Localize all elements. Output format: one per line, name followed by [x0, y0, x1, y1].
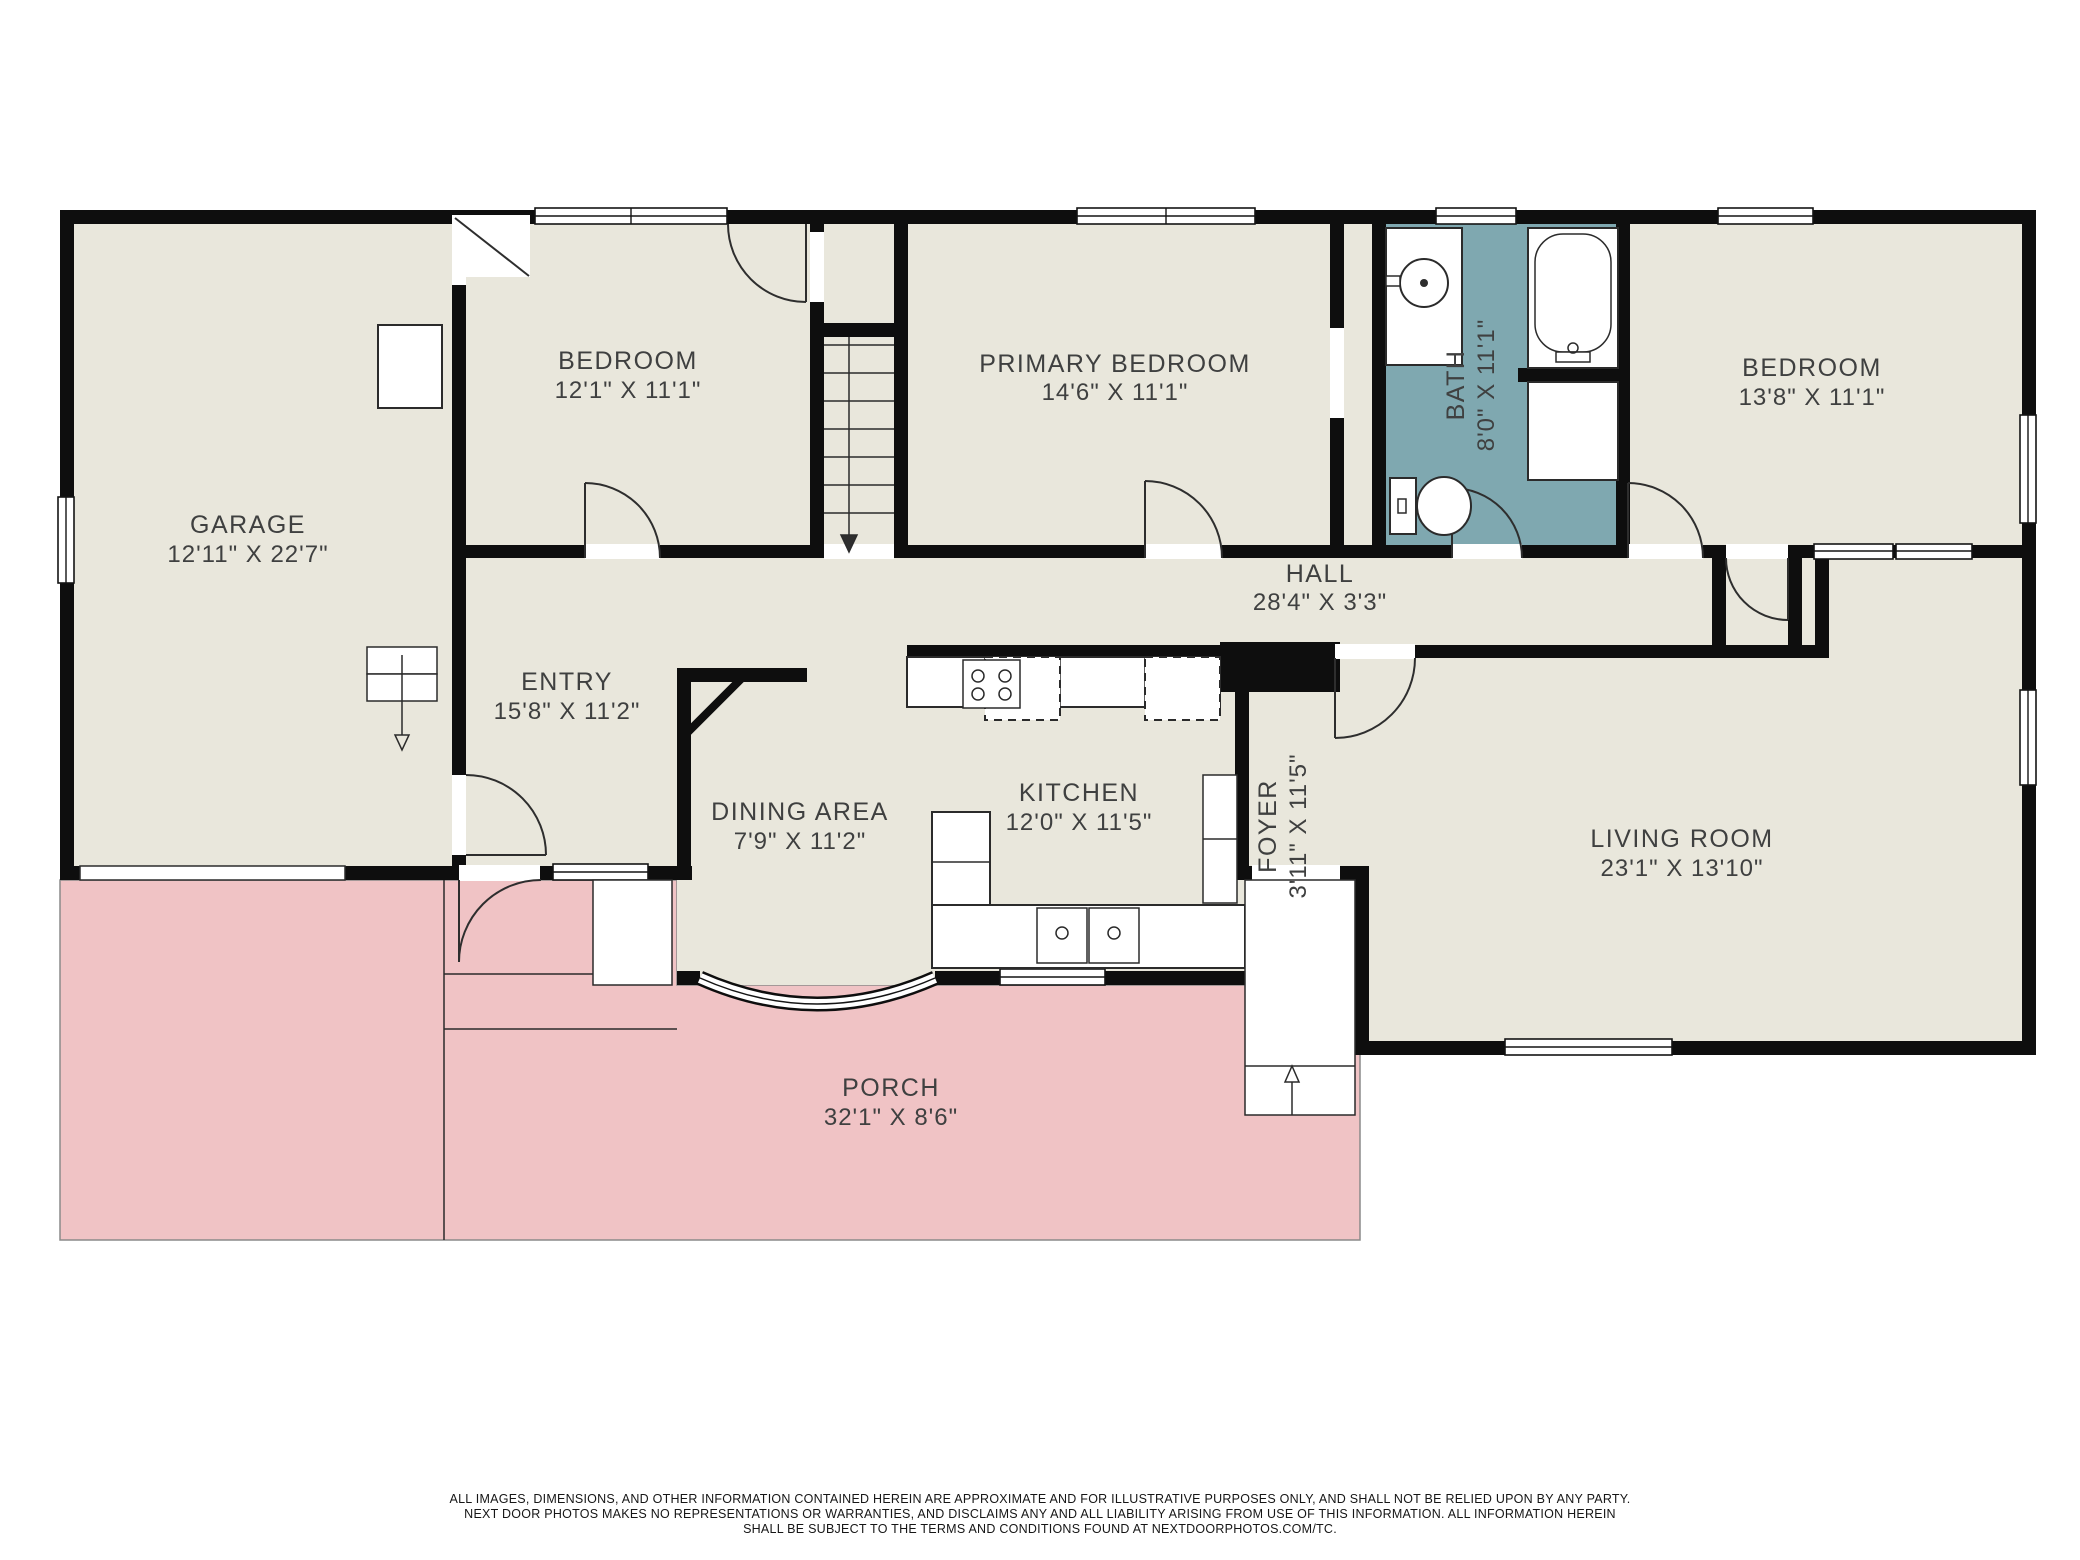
room-dims-bath: 8'0" X 11'1" [1473, 319, 1500, 452]
room-dims-entry: 15'8" X 11'2" [494, 698, 641, 725]
room-label-porch: PORCH [842, 1074, 940, 1102]
floor-plan-svg: GARAGE 12'11" X 22'7" BEDROOM 12'1" X 11… [0, 0, 2080, 1560]
toilet-bowl [1417, 477, 1471, 535]
room-label-kitchen: KITCHEN [1019, 779, 1139, 807]
room-label-bedroom-right: BEDROOM [1742, 354, 1882, 382]
room-label-bath: BATH [1442, 350, 1470, 421]
kitchen-sink [1037, 908, 1087, 963]
room-dims-garage: 12'11" X 22'7" [167, 541, 328, 568]
room-label-garage: GARAGE [190, 511, 306, 539]
bathtub-alcove [1528, 228, 1618, 368]
vanity [1386, 228, 1462, 365]
disclaimer-line-1: ALL IMAGES, DIMENSIONS, AND OTHER INFORM… [450, 1492, 1631, 1506]
room-dims-primary-bedroom: 14'6" X 11'1" [1042, 379, 1189, 406]
room-label-dining-area: DINING AREA [711, 798, 889, 826]
room-label-foyer: FOYER [1254, 779, 1282, 873]
room-dims-kitchen: 12'0" X 11'5" [1006, 809, 1153, 836]
room-label-hall: HALL [1286, 560, 1355, 588]
room-label-entry: ENTRY [521, 668, 613, 696]
disclaimer-line-2: NEXT DOOR PHOTOS MAKES NO REPRESENTATION… [464, 1507, 1616, 1521]
room-label-primary-bedroom: PRIMARY BEDROOM [979, 350, 1251, 378]
room-dims-foyer: 3'11" X 11'5" [1285, 753, 1312, 898]
linen-closet [1528, 382, 1618, 480]
entry-landing [593, 880, 672, 985]
disclaimer: ALL IMAGES, DIMENSIONS, AND OTHER INFORM… [450, 1492, 1631, 1536]
room-label-living-room: LIVING ROOM [1590, 825, 1773, 853]
room-dims-dining-area: 7'9" X 11'2" [734, 828, 867, 855]
utility-closet [378, 325, 442, 408]
room-label-bedroom-left: BEDROOM [558, 347, 698, 375]
room-dims-living-room: 23'1" X 13'10" [1601, 855, 1764, 882]
disclaimer-line-3: SHALL BE SUBJECT TO THE TERMS AND CONDIT… [743, 1522, 1337, 1536]
garage-door [80, 866, 345, 880]
room-dims-hall: 28'4" X 3'3" [1253, 589, 1387, 616]
room-dims-bedroom-left: 12'1" X 11'1" [555, 377, 702, 404]
room-dims-porch: 32'1" X 8'6" [824, 1104, 958, 1131]
room-dims-bedroom-right: 13'8" X 11'1" [1739, 384, 1886, 411]
front-stoop [1245, 880, 1355, 1115]
stove [963, 660, 1020, 708]
